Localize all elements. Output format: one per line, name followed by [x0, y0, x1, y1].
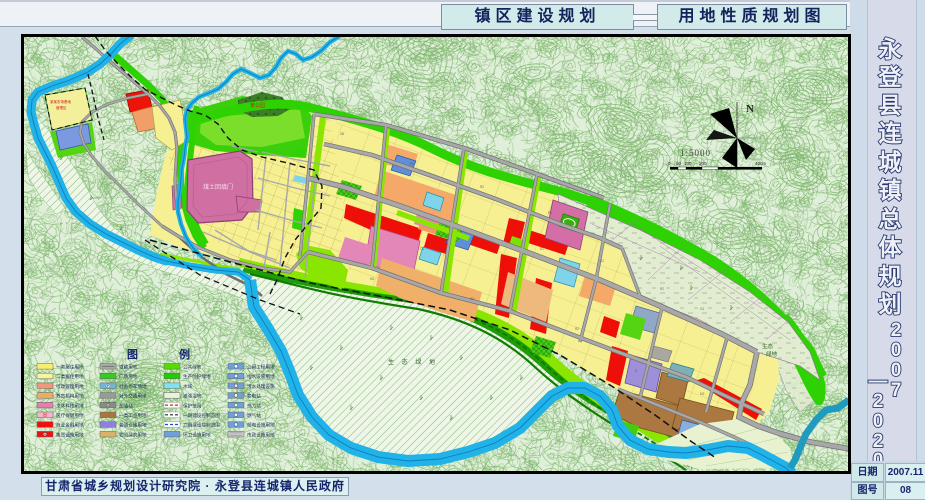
svg-text:C2: C2 [600, 259, 604, 263]
svg-text:绿地: 绿地 [766, 350, 778, 358]
svg-text:教育机构用地: 教育机构用地 [56, 393, 84, 400]
svg-text:某公园: 某公园 [250, 103, 265, 109]
svg-text:R2: R2 [410, 162, 414, 166]
svg-text:0: 0 [873, 411, 884, 432]
svg-text:公共绿地: 公共绿地 [183, 364, 202, 371]
svg-text:邮电设施用地: 邮电设施用地 [247, 422, 275, 429]
svg-text:200: 200 [699, 161, 707, 166]
svg-text:普通仓储用地: 普通仓储用地 [119, 422, 147, 429]
svg-text:N: N [746, 103, 754, 115]
svg-text:—: — [869, 371, 888, 392]
svg-text:M2: M2 [700, 392, 705, 396]
svg-text:环卫设施用地: 环卫设施用地 [183, 431, 211, 438]
svg-text:商业金融用地: 商业金融用地 [56, 422, 84, 429]
svg-text:G1: G1 [700, 307, 704, 311]
svg-text:0: 0 [891, 360, 902, 381]
svg-text:一类工业用地: 一类工业用地 [119, 412, 147, 419]
svg-text:社会停车场地: 社会停车场地 [119, 383, 147, 390]
svg-text:燃气站: 燃气站 [247, 412, 261, 419]
svg-text:R2: R2 [575, 327, 579, 331]
svg-text:对外交通用地: 对外交通用地 [119, 393, 147, 400]
svg-text:2: 2 [873, 431, 884, 452]
svg-text:变电站: 变电站 [247, 393, 261, 400]
svg-text:规: 规 [879, 263, 902, 289]
svg-text:行政管理用地: 行政管理用地 [56, 383, 84, 390]
svg-text:污水处理设施: 污水处理设施 [247, 383, 275, 390]
svg-text:划: 划 [879, 291, 902, 317]
svg-text:50: 50 [676, 161, 682, 166]
svg-text:W1: W1 [470, 297, 475, 301]
svg-text:0: 0 [891, 340, 902, 361]
svg-text:医疗保健用地: 医疗保健用地 [56, 412, 84, 419]
svg-text:R1: R1 [548, 211, 552, 215]
svg-text:连: 连 [879, 120, 903, 146]
svg-text:C1: C1 [420, 247, 424, 251]
svg-text:3B: 3B [340, 132, 344, 136]
svg-text:物流建筑用地: 物流建筑用地 [119, 431, 147, 438]
svg-text:城: 城 [879, 149, 902, 175]
svg-text:2: 2 [873, 391, 884, 412]
svg-text:滩涂湿地: 滩涂湿地 [183, 393, 202, 400]
svg-text:广场用地: 广场用地 [119, 373, 138, 380]
svg-text:生产防护绿地: 生产防护绿地 [183, 373, 211, 380]
svg-text:热力站: 热力站 [247, 402, 261, 409]
svg-text:煤土回填门: 煤土回填门 [203, 183, 233, 191]
svg-text:R2: R2 [660, 287, 664, 291]
svg-text:400m: 400m [755, 161, 767, 166]
svg-text:文体科技用地: 文体科技用地 [56, 402, 84, 409]
svg-text:R2: R2 [480, 185, 484, 189]
svg-text:二类居住用地: 二类居住用地 [56, 373, 84, 380]
svg-text:登: 登 [878, 64, 903, 90]
svg-text:公用工程用地: 公用工程用地 [247, 364, 275, 371]
svg-text:S1: S1 [540, 247, 544, 251]
svg-text:给水设施用地: 给水设施用地 [247, 373, 275, 380]
svg-text:集贸设施用地: 集贸设施用地 [56, 431, 84, 438]
svg-text:水域: 水域 [183, 383, 193, 389]
svg-text:100: 100 [684, 161, 692, 166]
svg-text:一类居住用地: 一类居住用地 [56, 364, 84, 371]
svg-text:1:5000: 1:5000 [680, 148, 711, 158]
svg-text:管理区: 管理区 [56, 105, 67, 110]
svg-text:市政设施用地: 市政设施用地 [247, 431, 275, 438]
svg-text:生 态 绿 地: 生 态 绿 地 [388, 358, 438, 366]
svg-text:2: 2 [891, 320, 902, 341]
svg-text:总: 总 [879, 206, 902, 232]
svg-text:二期建设控制范围: 二期建设控制范围 [183, 422, 220, 429]
svg-text:图 例: 图 例 [127, 347, 209, 361]
svg-text:M1: M1 [370, 277, 375, 281]
svg-text:一期建设控制范围: 一期建设控制范围 [183, 412, 220, 419]
svg-text:7: 7 [891, 380, 902, 401]
svg-text:道路用地: 道路用地 [119, 364, 138, 371]
svg-text:永: 永 [879, 36, 902, 62]
svg-text:生态: 生态 [762, 342, 774, 350]
svg-text:某某农场基地: 某某农场基地 [50, 99, 71, 104]
svg-text:县: 县 [879, 92, 902, 118]
svg-text:保护范围: 保护范围 [183, 402, 202, 409]
svg-text:加油站: 加油站 [119, 402, 133, 409]
svg-text:镇: 镇 [879, 177, 902, 203]
svg-text:体: 体 [879, 234, 903, 260]
